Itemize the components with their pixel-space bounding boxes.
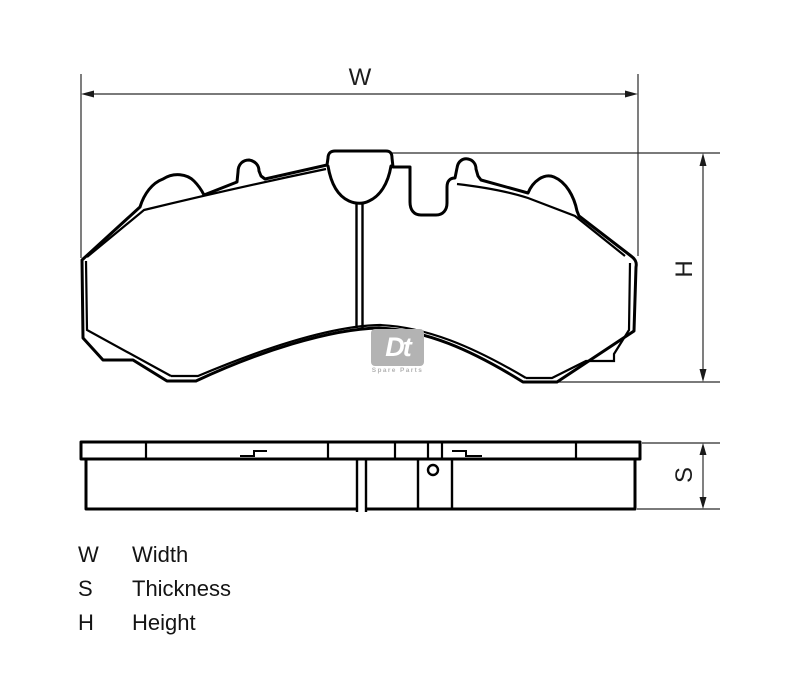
arrow-down-icon [700, 497, 707, 509]
dimension-s-label: S [672, 458, 698, 492]
brake-pad-drawing: W H S Dt Spare Parts W Width S Thickness… [0, 0, 800, 697]
legend-term: Height [132, 610, 196, 636]
watermark-subtitle: Spare Parts [371, 367, 424, 374]
arrow-right-icon [625, 91, 638, 98]
dimension-h-label: H [672, 252, 698, 286]
arrow-up-icon [700, 443, 707, 455]
mounting-hole [428, 465, 438, 475]
dimension-w-label: W [345, 64, 375, 92]
pad-side-view [81, 442, 640, 514]
dt-logo-watermark: Dt Spare Parts [371, 329, 424, 374]
dt-logo-icon: Dt [371, 329, 424, 366]
legend-symbol: W [78, 542, 132, 568]
arrow-down-icon [700, 369, 707, 382]
pad-outline [82, 151, 636, 382]
legend-row: H Height [78, 610, 231, 636]
legend-symbol: H [78, 610, 132, 636]
legend-row: W Width [78, 542, 231, 568]
arrow-left-icon [81, 91, 94, 98]
side-backing-strip [81, 442, 640, 459]
arrow-up-icon [700, 153, 707, 166]
legend-term: Width [132, 542, 188, 568]
legend: W Width S Thickness H Height [78, 542, 231, 644]
wear-slot-gap [358, 505, 365, 514]
pad-top-view [82, 151, 636, 382]
side-friction-block [86, 459, 635, 509]
legend-term: Thickness [132, 576, 231, 602]
legend-symbol: S [78, 576, 132, 602]
legend-row: S Thickness [78, 576, 231, 602]
